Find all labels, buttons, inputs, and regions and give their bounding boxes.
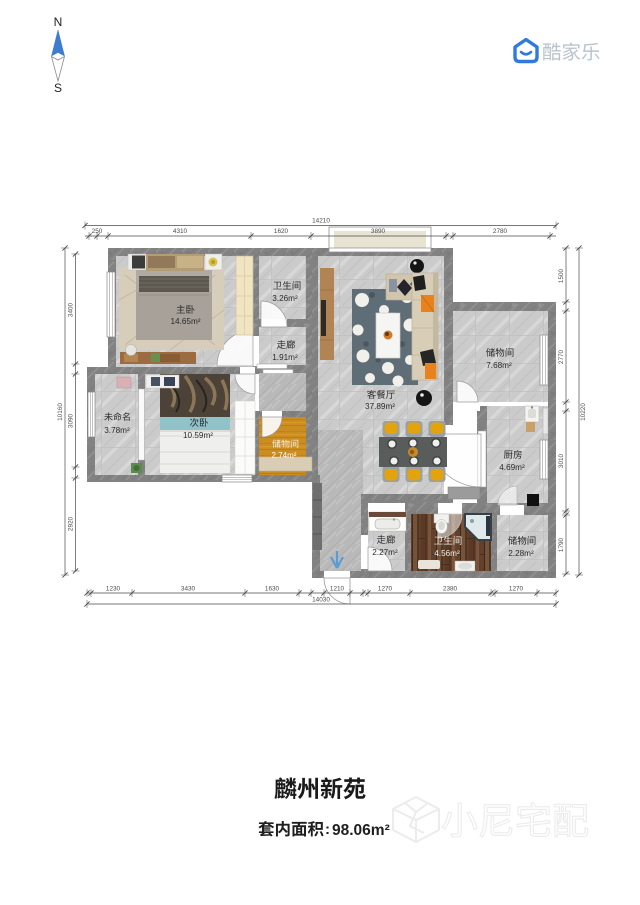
- svg-text:250: 250: [92, 228, 103, 235]
- svg-text:S: S: [54, 81, 62, 95]
- svg-text:1270: 1270: [378, 586, 393, 593]
- svg-text:1620: 1620: [274, 228, 289, 235]
- svg-text:10.59m²: 10.59m²: [183, 431, 213, 440]
- svg-text:2780: 2780: [493, 228, 508, 235]
- svg-text:3890: 3890: [371, 228, 386, 235]
- svg-text:3.78m²: 3.78m²: [104, 426, 130, 435]
- svg-text:1.91m²: 1.91m²: [272, 353, 298, 362]
- svg-text:2.28m²: 2.28m²: [508, 549, 534, 558]
- svg-text:14210: 14210: [312, 218, 330, 225]
- svg-text:10220: 10220: [580, 403, 587, 421]
- svg-text:4.69m²: 4.69m²: [499, 463, 525, 472]
- svg-text:1790: 1790: [558, 537, 565, 552]
- svg-text:10160: 10160: [57, 403, 64, 421]
- svg-text:37.89m²: 37.89m²: [365, 402, 395, 411]
- svg-text:3400: 3400: [68, 302, 75, 317]
- svg-text:2.74m²: 2.74m²: [272, 451, 297, 460]
- svg-text:N: N: [54, 15, 63, 29]
- svg-text:4310: 4310: [173, 228, 188, 235]
- svg-text:2.27m²: 2.27m²: [372, 548, 398, 557]
- svg-text:14030: 14030: [312, 597, 330, 604]
- svg-text:3.26m²: 3.26m²: [272, 294, 298, 303]
- svg-text:98.06m²: 98.06m²: [332, 822, 390, 839]
- svg-text:3090: 3090: [68, 413, 75, 428]
- svg-text:1500: 1500: [558, 268, 565, 283]
- svg-text:1270: 1270: [509, 586, 524, 593]
- svg-text:1230: 1230: [106, 586, 121, 593]
- svg-text:2380: 2380: [443, 586, 458, 593]
- svg-text:7.68m²: 7.68m²: [486, 361, 512, 370]
- svg-text:3430: 3430: [181, 586, 196, 593]
- svg-text:1630: 1630: [265, 586, 280, 593]
- svg-text:3010: 3010: [558, 453, 565, 468]
- svg-text:4.56m²: 4.56m²: [434, 549, 460, 558]
- svg-text::: :: [325, 821, 330, 838]
- svg-text:2770: 2770: [558, 349, 565, 364]
- svg-text:1210: 1210: [330, 586, 345, 593]
- svg-text:14.65m²: 14.65m²: [170, 317, 200, 326]
- svg-text:2920: 2920: [68, 516, 75, 531]
